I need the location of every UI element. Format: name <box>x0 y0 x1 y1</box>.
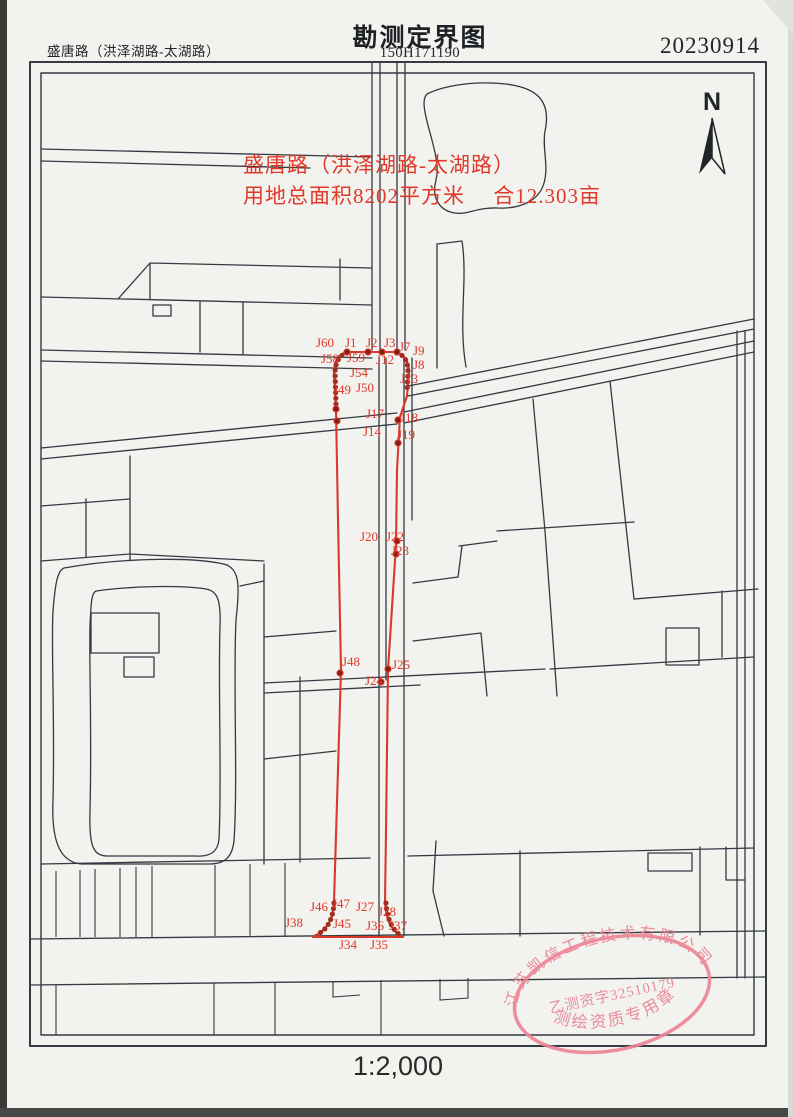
survey-map-page: 盛唐路（洪泽湖路-太湖路） 勘测定界图 150H171190 20230914 <box>0 0 793 1117</box>
land-area-annotation: 盛唐路（洪泽湖路-太湖路） 用地总面积8202平方米 合12.303亩 <box>243 150 601 212</box>
survey-point-label: J46 <box>310 899 328 915</box>
survey-point-label: J24 <box>365 673 383 689</box>
annotation-road-name: 盛唐路（洪泽湖路-太湖路） <box>243 150 601 181</box>
survey-point-label: J27 <box>356 899 374 915</box>
survey-point-label: J23 <box>391 543 409 559</box>
survey-point-label: J48 <box>342 654 360 670</box>
survey-point-label: J49 <box>333 382 351 398</box>
survey-point-label: J35 <box>370 937 388 953</box>
survey-point-label: J25 <box>392 657 410 673</box>
survey-point-label: J17 <box>366 406 384 422</box>
survey-point-label: J37 <box>389 918 407 934</box>
survey-point-label: J60 <box>316 335 334 351</box>
survey-point-label: J2 <box>366 335 378 351</box>
survey-point-label: J58 <box>321 351 339 367</box>
annotation-area: 用地总面积8202平方米 合12.303亩 <box>243 181 601 212</box>
survey-point-label: J38 <box>285 915 303 931</box>
survey-point-label: J47 <box>332 896 350 912</box>
survey-point-label: J19 <box>397 427 415 443</box>
survey-point-label: J20 <box>360 529 378 545</box>
north-label: N <box>703 88 721 116</box>
map-scale: 1:2,000 <box>298 1051 498 1082</box>
survey-point-label: J1 <box>345 335 357 351</box>
survey-point-label: J59 <box>347 350 365 366</box>
north-arrow: N <box>699 88 725 174</box>
survey-point-label: J45 <box>333 916 351 932</box>
survey-point-label: J54 <box>350 365 368 381</box>
survey-point-label: J50 <box>356 380 374 396</box>
survey-point-label: J14 <box>363 424 381 440</box>
survey-point-label: J13 <box>400 371 418 387</box>
survey-point-label: J18 <box>400 410 418 426</box>
survey-point-label: J7 <box>399 339 411 355</box>
survey-point-label: J12 <box>376 352 394 368</box>
survey-point-label: J36 <box>366 918 384 934</box>
red-boundary <box>313 349 409 937</box>
survey-point-label: J34 <box>339 937 357 953</box>
survey-point-label: J3 <box>384 335 396 351</box>
